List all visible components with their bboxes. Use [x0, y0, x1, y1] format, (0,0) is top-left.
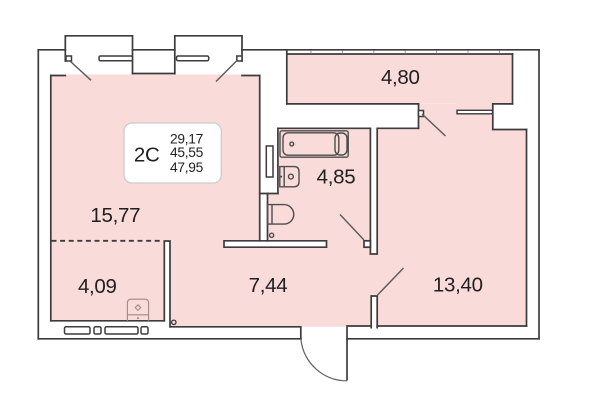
svg-text:4,85: 4,85	[317, 166, 356, 189]
svg-text:47,95: 47,95	[170, 160, 204, 175]
svg-text:45,55: 45,55	[170, 145, 204, 160]
svg-text:29,17: 29,17	[170, 131, 203, 146]
svg-text:4,09: 4,09	[78, 275, 117, 298]
svg-text:15,77: 15,77	[90, 204, 140, 227]
svg-text:2C: 2C	[134, 144, 160, 167]
svg-text:4,80: 4,80	[381, 66, 420, 89]
svg-text:7,44: 7,44	[249, 274, 288, 297]
svg-text:13,40: 13,40	[433, 273, 483, 296]
